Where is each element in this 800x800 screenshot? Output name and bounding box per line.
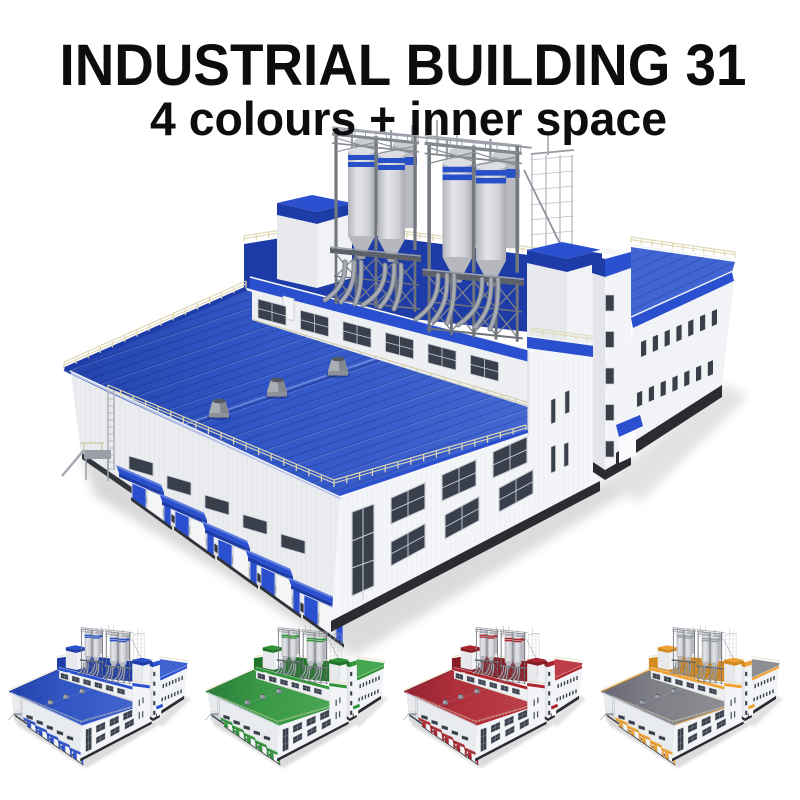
svg-text:4 colours + inner space: 4 colours + inner space xyxy=(150,92,667,145)
svg-text:INDUSTRIAL BUILDING 31: INDUSTRIAL BUILDING 31 xyxy=(60,33,747,98)
